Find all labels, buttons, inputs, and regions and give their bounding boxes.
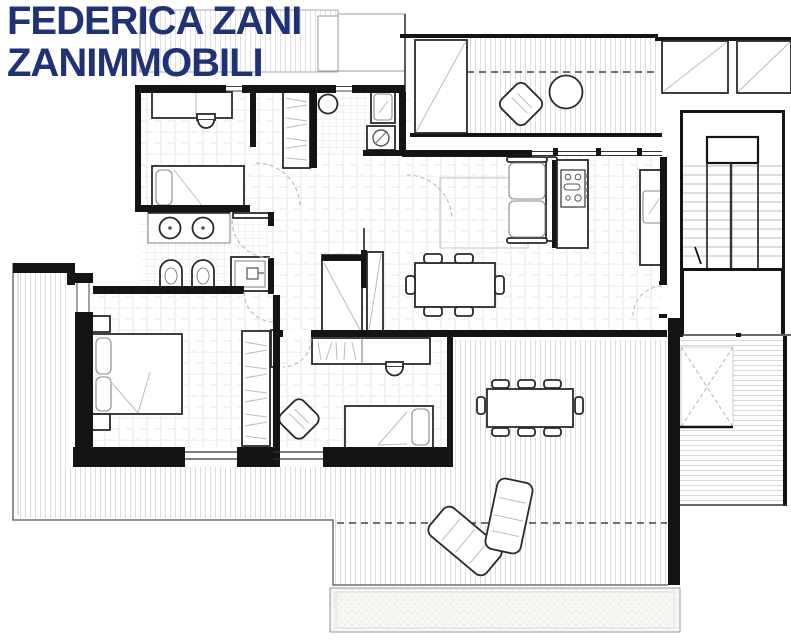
floor-plan-drawing	[0, 0, 791, 641]
single-bed	[345, 406, 433, 448]
desk-chair	[386, 362, 403, 376]
terrace-north-wall	[400, 34, 658, 38]
skylight-icon	[415, 40, 467, 133]
double-bed	[92, 334, 182, 414]
shower-icon	[231, 257, 269, 291]
single-bed	[152, 166, 244, 209]
round-stool	[319, 95, 338, 114]
agency-watermark: FEDERICA ZANI ZANIMMOBILI	[7, 0, 301, 84]
window	[532, 148, 662, 156]
outdoor-dining-set	[477, 380, 583, 436]
nightstand	[92, 316, 110, 332]
wardrobe-desk-unit	[312, 338, 430, 364]
skylight-below-icon	[680, 347, 733, 427]
skylight-icon	[662, 41, 728, 93]
desk	[152, 92, 232, 118]
towel-shelf	[233, 213, 271, 218]
top-terrace	[400, 34, 662, 137]
washing-machine-icon	[367, 126, 395, 150]
stair-landing-floor	[684, 271, 781, 333]
kitchen-island	[552, 160, 589, 248]
toilet-bowl	[197, 268, 209, 284]
bidet-bowl	[165, 268, 177, 284]
dining-table	[406, 254, 504, 316]
skylight-icon	[737, 41, 791, 93]
round-terrace-table	[550, 76, 583, 109]
agency-name-line2: ZANIMMOBILI	[7, 42, 301, 84]
roof-skylights-top-right	[655, 37, 791, 93]
desk-chair	[197, 114, 215, 128]
floor-plan-page: FEDERICA ZANI ZANIMMOBILI	[0, 0, 791, 641]
wardrobe-icon	[283, 90, 310, 168]
side-terrace-right	[668, 331, 791, 506]
planter-strip	[330, 588, 680, 632]
shower-icon	[371, 91, 395, 123]
window	[77, 283, 89, 312]
agency-name-line1: FEDERICA ZANI	[7, 0, 301, 42]
nightstand	[92, 414, 110, 430]
vanity-with-sinks	[148, 212, 230, 243]
wardrobe-icon	[242, 330, 275, 446]
